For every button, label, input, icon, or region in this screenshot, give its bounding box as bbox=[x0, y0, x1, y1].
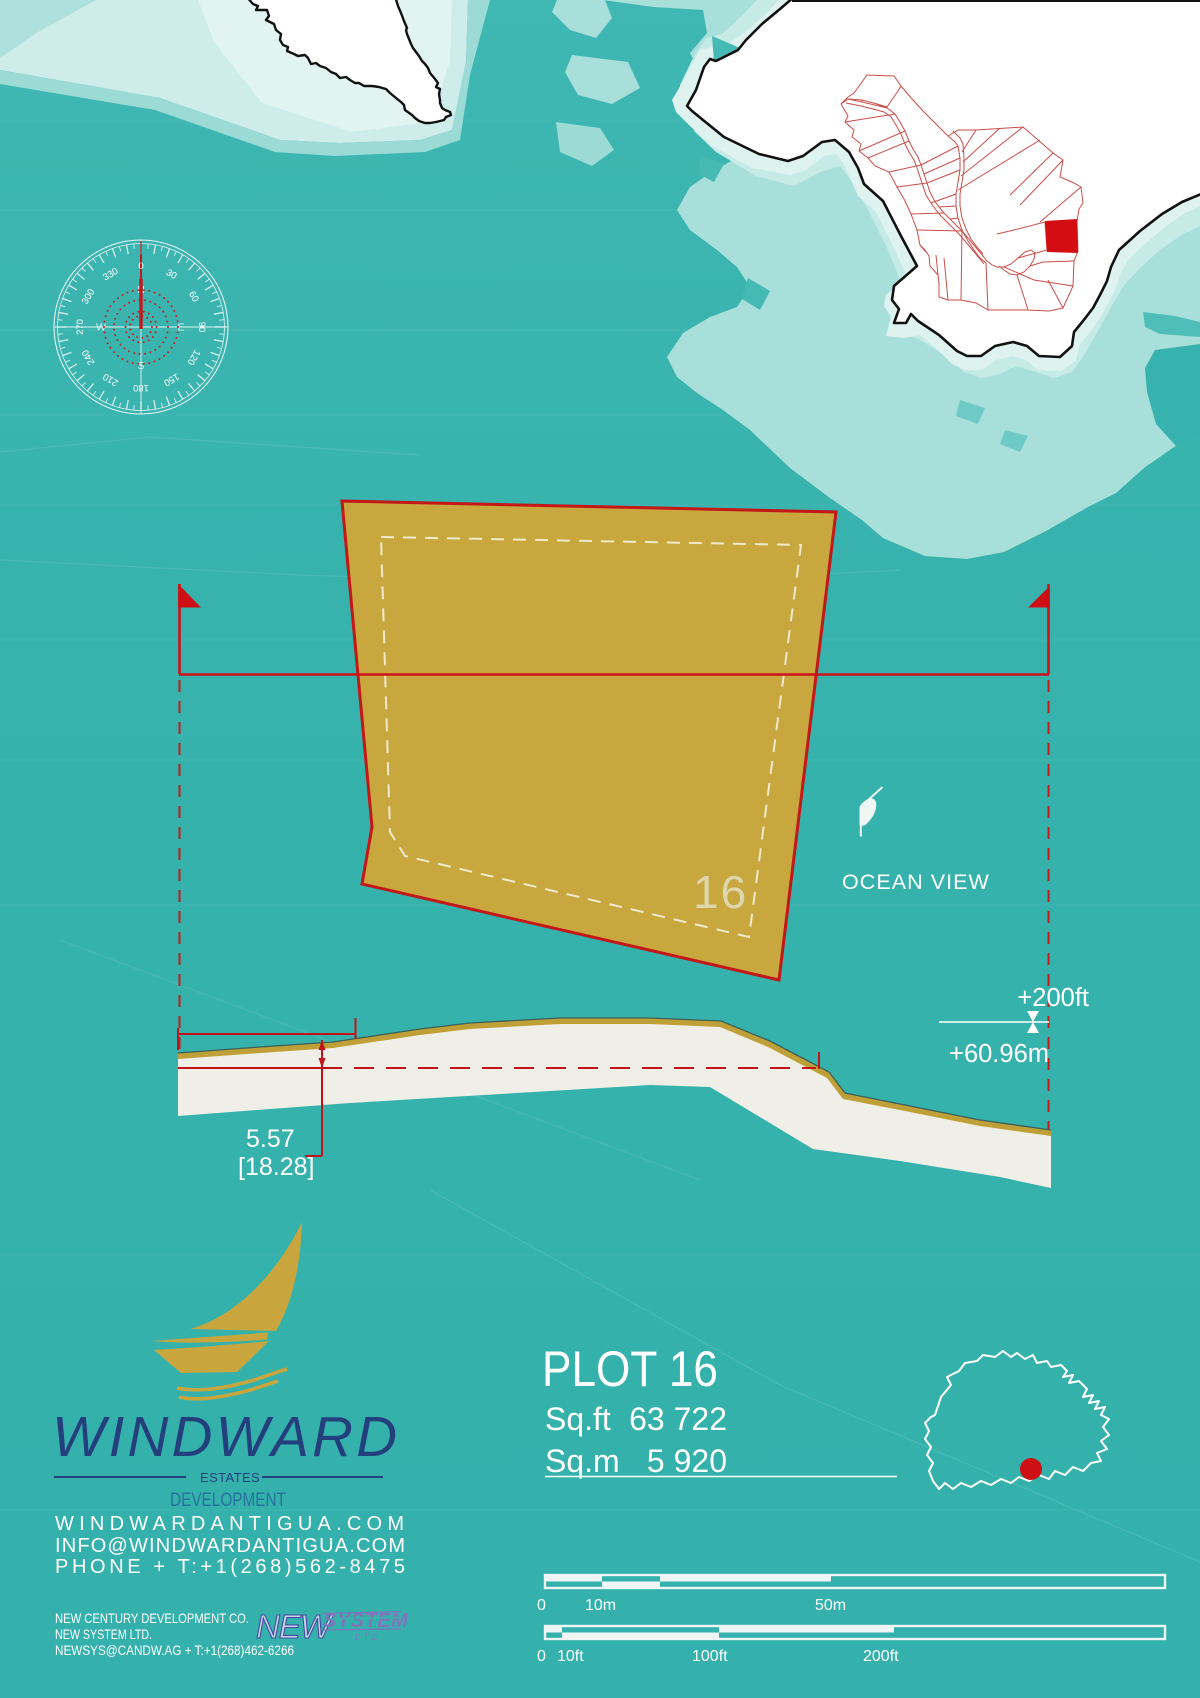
svg-text:10m: 10m bbox=[585, 1597, 616, 1614]
svg-text:50m: 50m bbox=[815, 1597, 846, 1614]
svg-text:200ft: 200ft bbox=[863, 1648, 899, 1665]
svg-text:NEW SYSTEM LTD.: NEW SYSTEM LTD. bbox=[55, 1626, 152, 1642]
svg-text:10ft: 10ft bbox=[557, 1648, 584, 1665]
svg-text:0: 0 bbox=[537, 1648, 546, 1665]
svg-text:0: 0 bbox=[537, 1597, 546, 1614]
svg-text:NEW CENTURY DEVELOPMENT CO.: NEW CENTURY DEVELOPMENT CO. bbox=[55, 1610, 249, 1626]
svg-text:DEVELOPMENT: DEVELOPMENT bbox=[170, 1490, 286, 1511]
svg-text:+200ft: +200ft bbox=[1017, 984, 1089, 1012]
svg-text:ESTATES: ESTATES bbox=[200, 1470, 260, 1485]
svg-text:100ft: 100ft bbox=[692, 1648, 728, 1665]
svg-text:63 722: 63 722 bbox=[629, 1401, 727, 1437]
svg-text:Sq.m: Sq.m bbox=[545, 1443, 620, 1479]
svg-text:WINDWARD: WINDWARD bbox=[52, 1405, 397, 1468]
svg-text:16: 16 bbox=[693, 866, 748, 918]
svg-text:LTD: LTD bbox=[355, 1632, 382, 1642]
svg-text:PLOT 16: PLOT 16 bbox=[542, 1341, 718, 1397]
svg-text:5.57: 5.57 bbox=[246, 1125, 295, 1153]
svg-text:OCEAN VIEW: OCEAN VIEW bbox=[842, 870, 992, 894]
svg-text:5 920: 5 920 bbox=[647, 1443, 727, 1479]
svg-text:INFO@WINDWARDANTIGUA.COM: INFO@WINDWARDANTIGUA.COM bbox=[55, 1535, 405, 1557]
svg-text:+60.96m: +60.96m bbox=[949, 1040, 1049, 1068]
svg-text:[18.28]: [18.28] bbox=[238, 1153, 314, 1181]
svg-text:Sq.ft: Sq.ft bbox=[545, 1401, 611, 1437]
svg-text:S: S bbox=[137, 360, 144, 372]
